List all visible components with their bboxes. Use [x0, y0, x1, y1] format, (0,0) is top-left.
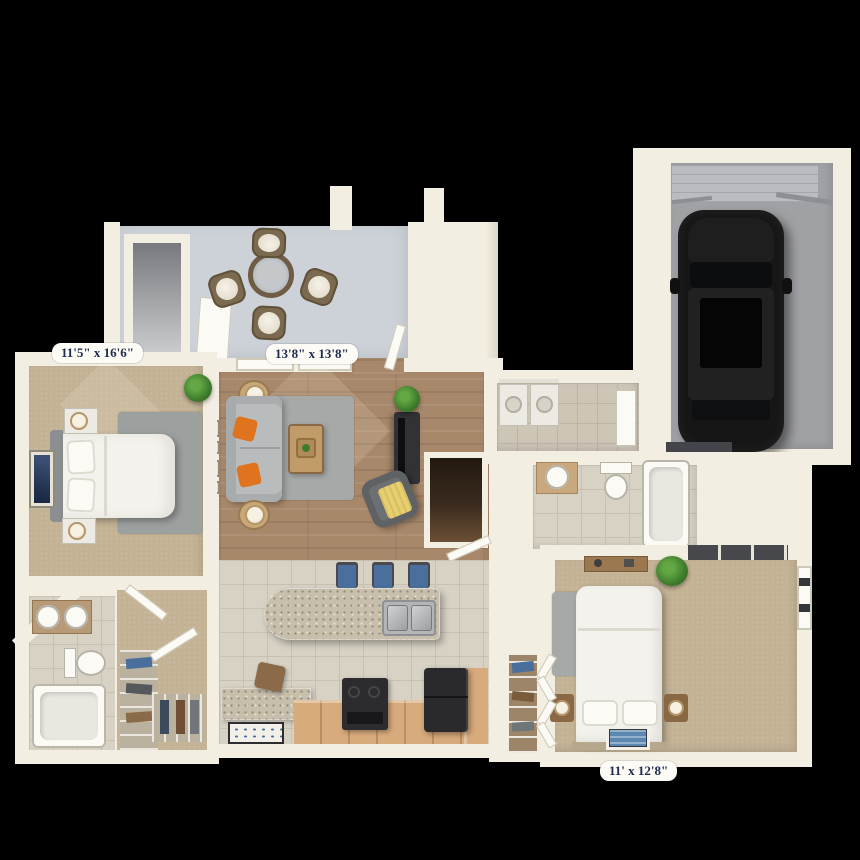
- patio-chair: [251, 305, 287, 341]
- plant: [656, 556, 688, 586]
- bed-fold-line: [104, 436, 107, 516]
- garage-entry-door: [616, 390, 636, 446]
- bar-stool: [336, 562, 358, 588]
- toilet-bowl: [76, 650, 106, 676]
- wall: [706, 452, 812, 552]
- window: [688, 545, 788, 560]
- bed-fold-line: [578, 628, 660, 631]
- toilet-tank: [600, 462, 632, 474]
- closet-clothes: [512, 691, 535, 702]
- decor-basket: [254, 661, 287, 692]
- car-mirror-icon: [670, 278, 680, 294]
- bar-stool: [408, 562, 430, 588]
- bed-pillow: [582, 700, 618, 726]
- sofa: [226, 396, 282, 502]
- bathtub-basin: [40, 692, 98, 740]
- dresser-decor-icon: [594, 559, 602, 567]
- dimension-label-bedroom1: 11'5" x 16'6": [52, 343, 143, 363]
- plant: [394, 386, 420, 412]
- dryer-door-icon: [536, 396, 553, 413]
- kitchen-mat: [228, 722, 284, 744]
- plant-pot-icon: [302, 444, 310, 452]
- oven-door: [347, 712, 383, 724]
- plant: [184, 374, 212, 402]
- bed-pillow: [66, 439, 96, 474]
- tv-screen: [398, 418, 405, 478]
- toilet-bowl: [604, 474, 628, 500]
- car-mirror-icon: [782, 278, 792, 294]
- wall-stub: [330, 186, 352, 230]
- dimension-label-bedroom2: 11' x 12'8": [600, 761, 677, 781]
- closet-clothes: [160, 700, 169, 734]
- table-lamp: [554, 700, 570, 716]
- bar-stool: [372, 562, 394, 588]
- table-lamp: [70, 412, 88, 430]
- table-lamp: [245, 505, 265, 525]
- dimension-label-living: 13'8" x 13'8": [266, 344, 358, 364]
- closet-clothes: [512, 721, 535, 732]
- bedroom2-mat: [606, 726, 650, 750]
- patio-table: [248, 252, 294, 298]
- washer-door-icon: [505, 396, 522, 413]
- bath1-sink: [36, 605, 60, 629]
- car-sunroof: [700, 298, 762, 368]
- refrigerator: [424, 668, 468, 732]
- sink-basin: [387, 605, 408, 631]
- car-rear-window: [692, 400, 770, 420]
- table-lamp: [668, 700, 684, 716]
- refrigerator-seam: [424, 696, 468, 698]
- car-hood: [688, 218, 774, 262]
- closet-clothes: [176, 700, 185, 734]
- sofa-seam: [240, 447, 280, 449]
- bed-pillow: [622, 700, 658, 726]
- table-lamp: [68, 522, 86, 540]
- car-windshield: [690, 262, 772, 288]
- bath1-sink: [64, 605, 88, 629]
- window: [797, 566, 812, 630]
- bathtub-basin: [649, 467, 683, 541]
- sink-basin: [411, 605, 432, 631]
- throw-pillow: [236, 462, 262, 488]
- alcove-niche: [424, 452, 488, 548]
- patio-chair: [251, 227, 286, 258]
- closet-clothes: [126, 683, 153, 695]
- laundry-shelf: [499, 379, 559, 383]
- toilet-tank: [64, 648, 76, 678]
- stove-burner-icon: [348, 686, 360, 698]
- closet-clothes: [126, 711, 153, 723]
- closet-clothes: [190, 700, 199, 734]
- bed-pillow: [66, 477, 96, 512]
- dresser-decor-icon: [624, 559, 634, 567]
- wall-art: [31, 452, 53, 506]
- floor-plan: 11'5" x 16'6" 13'8" x 13'8" 11' x 12'8": [0, 0, 860, 860]
- stove-burner-icon: [368, 686, 380, 698]
- bath2-sink: [545, 465, 569, 489]
